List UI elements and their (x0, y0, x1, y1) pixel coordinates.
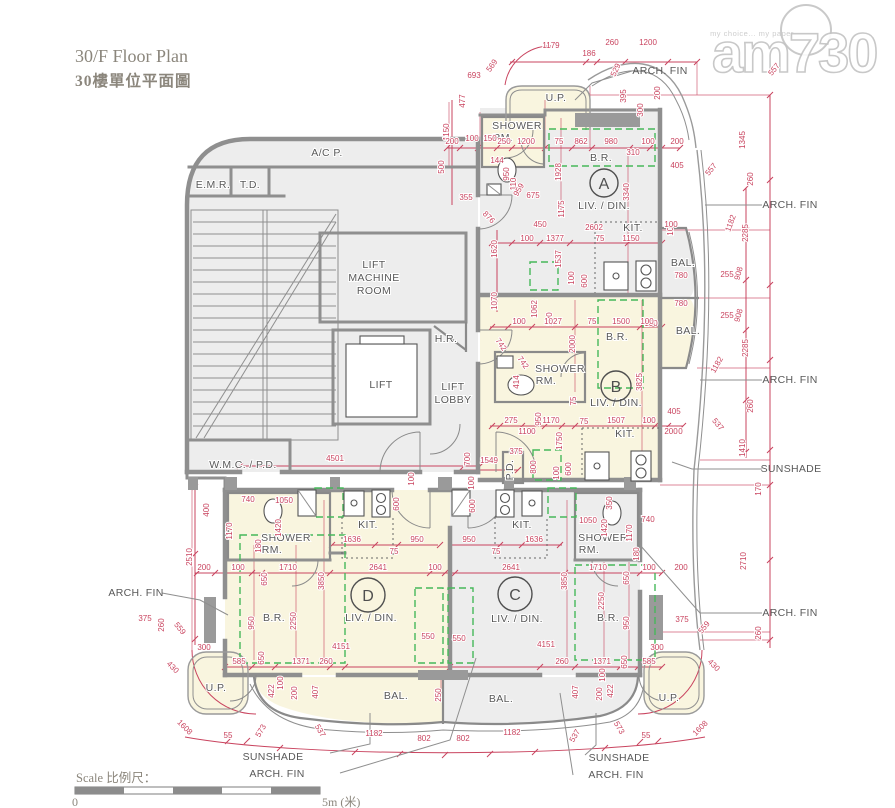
dimension-label: 1371 (292, 657, 310, 666)
dimension-label: 2602 (585, 223, 603, 232)
dimension-label: 950 (462, 535, 476, 544)
callout-label: ARCH. FIN (249, 768, 304, 780)
dimension-label: 600 (468, 499, 477, 513)
dimension-label: 1182 (503, 728, 521, 737)
room-label: LIV. / DIN. (590, 397, 642, 409)
callout-label: ARCH. FIN (762, 199, 817, 211)
dimension-label: 537 (568, 727, 583, 744)
room-label: LIFT (369, 379, 392, 391)
column (225, 477, 237, 490)
dimension-label: 407 (311, 685, 320, 699)
dimension-label: 300 (650, 643, 664, 652)
dimension-label: 585 (642, 657, 656, 666)
dimension-label: 802 (456, 734, 470, 743)
dimension-label: 2510 (185, 548, 194, 566)
room-label: KIT. (623, 222, 643, 234)
room-label: LIV. / DIN. (491, 613, 543, 625)
dimension-label: 1928 (554, 163, 563, 181)
room-label: SHOWER (492, 120, 542, 132)
am730-logo: my choice... my paper am730 (710, 5, 876, 84)
dimension-label: 170 (754, 482, 763, 496)
dimension-label: 573 (612, 720, 627, 737)
callout-label: ARCH. FIN (762, 374, 817, 386)
dimension-label: 1549 (480, 456, 498, 465)
dimension-label: 1608 (175, 718, 194, 737)
callout-label: ARCH. FIN (108, 587, 163, 599)
dimension-label: 537 (313, 723, 328, 740)
dimension-label: 75 (569, 396, 578, 405)
dimension-label: 3850 (317, 572, 326, 590)
dimension-label: 585 (232, 657, 246, 666)
dimension-label: 100 (276, 676, 285, 690)
scale-end: 5m (米) (322, 795, 360, 808)
dimension-label: 1179 (542, 41, 560, 50)
dimension-label: 2285 (741, 339, 750, 357)
dimension-label: 2641 (369, 563, 387, 572)
dimension-label: 260 (157, 618, 166, 632)
dimension-label: 557 (703, 161, 719, 177)
dimension-label: 537 (710, 416, 726, 432)
dimension-label: 2285 (741, 224, 750, 242)
dimension-label: 300 (197, 643, 211, 652)
dimension-label: 675 (526, 191, 540, 200)
dimension-label: 1175 (557, 200, 566, 218)
dimension-label: 1620 (490, 240, 499, 258)
callout-label: ARCH. FIN (588, 769, 643, 781)
dimension-label: 550 (421, 632, 435, 641)
callout-label: ARCH. FIN (762, 607, 817, 619)
dimension-label: 1377 (546, 234, 564, 243)
dimension-label: 1608 (691, 718, 710, 737)
dimension-label: 1150 (622, 234, 640, 243)
dimension-label: 422 (606, 684, 615, 698)
dimension-label: 1420 (600, 519, 609, 537)
dimension-label: 260 (746, 399, 755, 413)
dimension-label: 100 (640, 317, 654, 326)
dimension-label: 275 (504, 416, 518, 425)
dimension-label: 405 (667, 407, 681, 416)
dimension-label: 908 (733, 265, 745, 281)
dimension-label: 200 (674, 563, 688, 572)
room-label: SHOWER (261, 532, 311, 544)
dimension-label: 1710 (279, 563, 297, 572)
dimension-label: 477 (458, 94, 467, 108)
dimension-label: 559 (172, 620, 188, 636)
dimension-label: 375 (675, 615, 689, 624)
arch-fin-right (649, 595, 663, 640)
dimension-label: 908 (733, 307, 745, 323)
dimension-label: 1371 (593, 657, 611, 666)
dimension-label: 1200 (517, 137, 535, 146)
column (438, 477, 452, 490)
room-label: LIFT (362, 259, 385, 271)
dimension-label: 1410 (738, 439, 747, 457)
callout-label: SUNSHADE (589, 752, 650, 764)
dimension-label: 55 (224, 731, 233, 740)
room-label: KIT. (358, 519, 378, 531)
dimension-label: 250 (434, 688, 443, 702)
scale-label: Scale 比例尺： (76, 771, 156, 785)
room-label: ROOM (357, 285, 391, 297)
dimension-label: 422 (267, 684, 276, 698)
dimension-label: 100 (428, 563, 442, 572)
dimension-label: 1500 (612, 317, 630, 326)
room-label: LIV. / DIN. (345, 612, 397, 624)
dimension-label: 573 (254, 722, 269, 739)
dimension-label: 100 (512, 317, 526, 326)
dimension-label: 1420 (274, 519, 283, 537)
scale-bar: Scale 比例尺： 0 5m (米) (72, 771, 360, 808)
dimension-label: 100 (231, 563, 245, 572)
dimension-label: 150 (483, 134, 497, 143)
dimension-label: 75 (580, 417, 589, 426)
dimension-label: 375 (138, 614, 152, 623)
dimension-label: 75 (492, 547, 501, 556)
dimension-label: 2641 (502, 563, 520, 572)
unit-letter-d: D (362, 588, 374, 605)
dimension-label: 1507 (607, 416, 625, 425)
unit-letter-b: B (611, 379, 622, 396)
dimension-label: 350 (605, 496, 614, 510)
dimension-label: 100 (641, 137, 655, 146)
dimension-label: 950 (410, 535, 424, 544)
lift-door (360, 336, 404, 344)
scale-start: 0 (72, 795, 78, 808)
dimension-label: 780 (674, 299, 688, 308)
dimension-label: 1100 (518, 427, 536, 436)
room-label: KIT. (615, 428, 635, 440)
dimension-label: 100 (520, 234, 534, 243)
room-label: BAL. (676, 325, 700, 337)
dimension-label: 100 (567, 271, 576, 285)
unit-letter-c: C (509, 587, 521, 604)
logo-brand: am730 (712, 21, 876, 84)
dimension-label: 260 (555, 657, 569, 666)
dimension-label: 650 (257, 651, 266, 665)
dimension-label: 75 (596, 234, 605, 243)
dimension-label: 375 (509, 447, 523, 456)
room-label: E.M.R. (196, 179, 231, 191)
column (418, 670, 468, 680)
dimension-label: 75 (555, 137, 564, 146)
dimension-label: 500 (437, 160, 446, 174)
dimension-label: 260 (746, 172, 755, 186)
dimension-label: 1200 (639, 38, 657, 47)
room-label: LOBBY (434, 394, 471, 406)
dimension-label: 800 (529, 460, 538, 474)
dimension-label: 4501 (326, 454, 344, 463)
dimension-label: 200 (653, 86, 662, 100)
dimension-label: 300 (636, 103, 645, 117)
floor-plan: 30/F Floor Plan 30樓單位平面圖 my choice... my… (0, 0, 895, 808)
dimension-label: 1750 (555, 432, 564, 450)
room-label: B.R. (263, 612, 285, 624)
dimension-label: 600 (580, 274, 589, 288)
scale-bar-segment (75, 787, 124, 794)
dimension-label: 450 (533, 220, 547, 229)
dimension-label: 862 (574, 137, 588, 146)
dimension-label: 980 (604, 137, 618, 146)
dimension-label: 1062 (530, 300, 539, 318)
scale-bar-segment (173, 787, 222, 794)
dimension-label: 260 (754, 626, 763, 640)
dimension-label: 355 (459, 193, 473, 202)
dimension-label: 260 (605, 38, 619, 47)
dimension-label: 4151 (537, 640, 555, 649)
dimension-label: 100 (642, 563, 656, 572)
dimension-label: 200 (664, 427, 678, 436)
dimension-label: 650 (622, 571, 631, 585)
dimension-label: 1070 (490, 292, 499, 310)
dimension-label: 740 (641, 515, 655, 524)
dimension-label: 1050 (275, 496, 293, 505)
room-label: U.P. (206, 682, 227, 694)
dimension-label: 802 (417, 734, 431, 743)
dimension-label: 310 (626, 148, 640, 157)
dimension-label: 405 (670, 161, 684, 170)
column (188, 477, 198, 490)
dimension-label: 430 (706, 657, 722, 673)
dimension-label: 144 (490, 156, 504, 165)
room-label: U.P. (659, 692, 680, 704)
room-label: H.R. (435, 333, 458, 345)
room-label: KIT. (512, 519, 532, 531)
room-label: U.P. (546, 92, 567, 104)
room-label: BAL. (671, 257, 695, 269)
bal-c-fill (443, 677, 638, 724)
dimension-label: 1182 (709, 355, 726, 375)
dimension-label: 1170 (225, 522, 234, 540)
dimension-label: 950 (247, 616, 256, 630)
unit-letter-a: A (599, 176, 610, 193)
callout-label: ARCH. FIN (632, 65, 687, 77)
dimension-label: 2710 (739, 552, 748, 570)
dimension-label: 75 (390, 547, 399, 556)
dimension-label: 2250 (289, 612, 298, 630)
dimension-label: 414 (512, 375, 521, 389)
dimension-label: 180 (632, 547, 641, 561)
dimension-label: 100 (664, 220, 678, 229)
page-title: 30/F Floor Plan (75, 46, 188, 66)
dimension-label: 569 (484, 57, 499, 74)
dimension-label: 650 (620, 655, 629, 669)
dimension-label: 100 (467, 476, 476, 490)
room-label: SHOWER (535, 363, 585, 375)
dimension-label: 100 (598, 668, 607, 682)
dimension-label: 55 (642, 731, 651, 740)
room-label: B.R. (590, 152, 612, 164)
dimension-label: 255 (720, 270, 734, 279)
dimension-label: 650 (260, 572, 269, 586)
dimension-label: 100 (465, 134, 479, 143)
dimension-label: 395 (619, 89, 628, 103)
callout-label: SUNSHADE (243, 751, 304, 763)
dimension-label: 693 (467, 71, 481, 80)
dimension-label: 260 (319, 657, 333, 666)
dimension-label: 3825 (635, 373, 644, 391)
room-label: B.R. (606, 331, 628, 343)
room-label: RM. (262, 544, 282, 556)
dimension-label: 200 (595, 687, 604, 701)
dimension-label: 1170 (542, 416, 560, 425)
dimension-label: 600 (564, 462, 573, 476)
dimension-label: 1050 (579, 516, 597, 525)
dimension-label: 1027 (544, 317, 562, 326)
room-label: P.D. (504, 460, 516, 481)
room-label: T.D. (240, 179, 260, 191)
dimension-label: 75 (588, 317, 597, 326)
dimension-label: 200 (670, 137, 684, 146)
dimension-label: 200 (445, 137, 459, 146)
sunshade-right-curve (693, 150, 705, 650)
dimension-label: 3340 (622, 183, 631, 201)
dimension-label: 430 (165, 659, 181, 675)
dimension-label: 1636 (343, 535, 361, 544)
wall-poche-a (575, 113, 640, 127)
dimension-label: 2250 (597, 592, 606, 610)
dimension-label: 1170 (625, 524, 634, 542)
room-label: LIFT (441, 381, 464, 393)
dimension-label: 1537 (554, 250, 563, 268)
dimension-label: 180 (254, 539, 263, 553)
room-label: RM. (536, 375, 556, 387)
room-label: BAL. (384, 690, 408, 702)
room-label: A/C P. (311, 147, 342, 159)
room-label: B.R. (597, 612, 619, 624)
dimension-label: 950 (622, 616, 631, 630)
room-label: W.M.C. / P.D. (209, 459, 276, 471)
dimension-label: 400 (202, 503, 211, 517)
dimension-label: 4151 (332, 642, 350, 651)
callout-label: SUNSHADE (761, 463, 822, 475)
arch-fin-left (204, 597, 216, 643)
room-label: RM. (579, 544, 599, 556)
dimension-label: 407 (571, 685, 580, 699)
dimension-label: 529 (609, 61, 623, 77)
dimension-label: 780 (674, 271, 688, 280)
dimension-label: 1636 (525, 535, 543, 544)
dimension-label: 250 (497, 137, 511, 146)
room-label: BAL. (489, 693, 513, 705)
dimension-label: 100 (407, 472, 416, 486)
dimension-label: 550 (452, 634, 466, 643)
dimension-label: 740 (241, 495, 255, 504)
dimension-label: 186 (582, 49, 596, 58)
room-label: MACHINE (348, 272, 399, 284)
dimension-label: 2000 (568, 335, 577, 353)
scale-bar-segment (271, 787, 320, 794)
dimension-label: 1345 (738, 131, 747, 149)
dimension-label: 200 (290, 686, 299, 700)
dimension-label: 1182 (365, 729, 383, 738)
dimension-label: 700 (463, 452, 472, 466)
dimension-label: 600 (392, 497, 401, 511)
dimension-label: 1710 (589, 563, 607, 572)
dimension-label: 100 (552, 466, 561, 480)
dimension-label: 200 (197, 563, 211, 572)
page-title-zh: 30樓單位平面圖 (75, 71, 192, 90)
dimension-label: 3850 (560, 572, 569, 590)
dimension-label: 100 (642, 416, 656, 425)
